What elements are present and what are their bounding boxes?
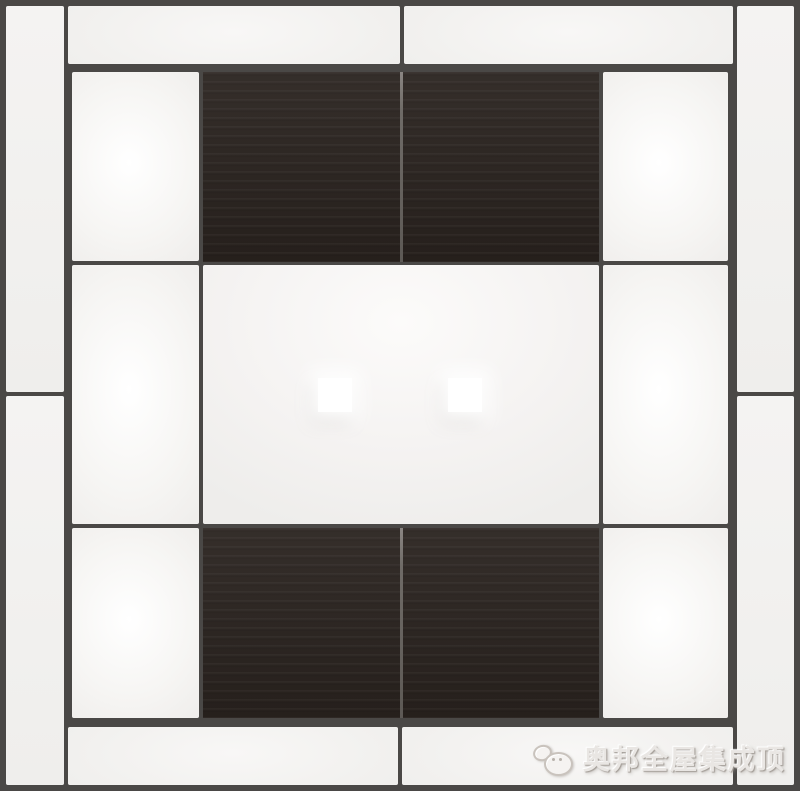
backlit-panel-left-top xyxy=(72,72,199,261)
backlit-panel-right-top xyxy=(603,72,728,261)
center-panel xyxy=(203,265,599,524)
wood-panel-seam-top xyxy=(400,72,403,262)
brand-watermark-text: 奥邦全屋集成顶 xyxy=(583,747,786,774)
wood-panel-bottom-left xyxy=(203,528,400,718)
backlit-panel-right-middle xyxy=(603,265,728,524)
edge-strip-top-right xyxy=(404,6,733,64)
backlit-panel-left-bottom xyxy=(72,528,199,718)
edge-strip-right-upper xyxy=(737,6,794,392)
ceiling-product-image: 奥邦全屋集成顶 xyxy=(0,0,800,791)
mascot-logo-icon xyxy=(532,742,576,778)
edge-strip-left-lower xyxy=(6,396,64,785)
edge-strip-bottom-left xyxy=(68,727,398,785)
wood-panel-seam-bottom xyxy=(400,528,403,718)
wood-panel-bottom-right xyxy=(403,528,599,718)
spotlight xyxy=(318,378,352,412)
wood-panel-top-right xyxy=(403,72,599,262)
backlit-panel-right-bottom xyxy=(603,528,728,718)
backlit-panel-left-middle xyxy=(72,265,199,524)
edge-strip-right-lower xyxy=(737,396,794,785)
brand-watermark: 奥邦全屋集成顶 xyxy=(532,742,786,778)
wood-panel-top-left xyxy=(203,72,400,262)
spotlight xyxy=(448,378,482,412)
edge-strip-left-upper xyxy=(6,6,64,392)
edge-strip-top-left xyxy=(68,6,400,64)
